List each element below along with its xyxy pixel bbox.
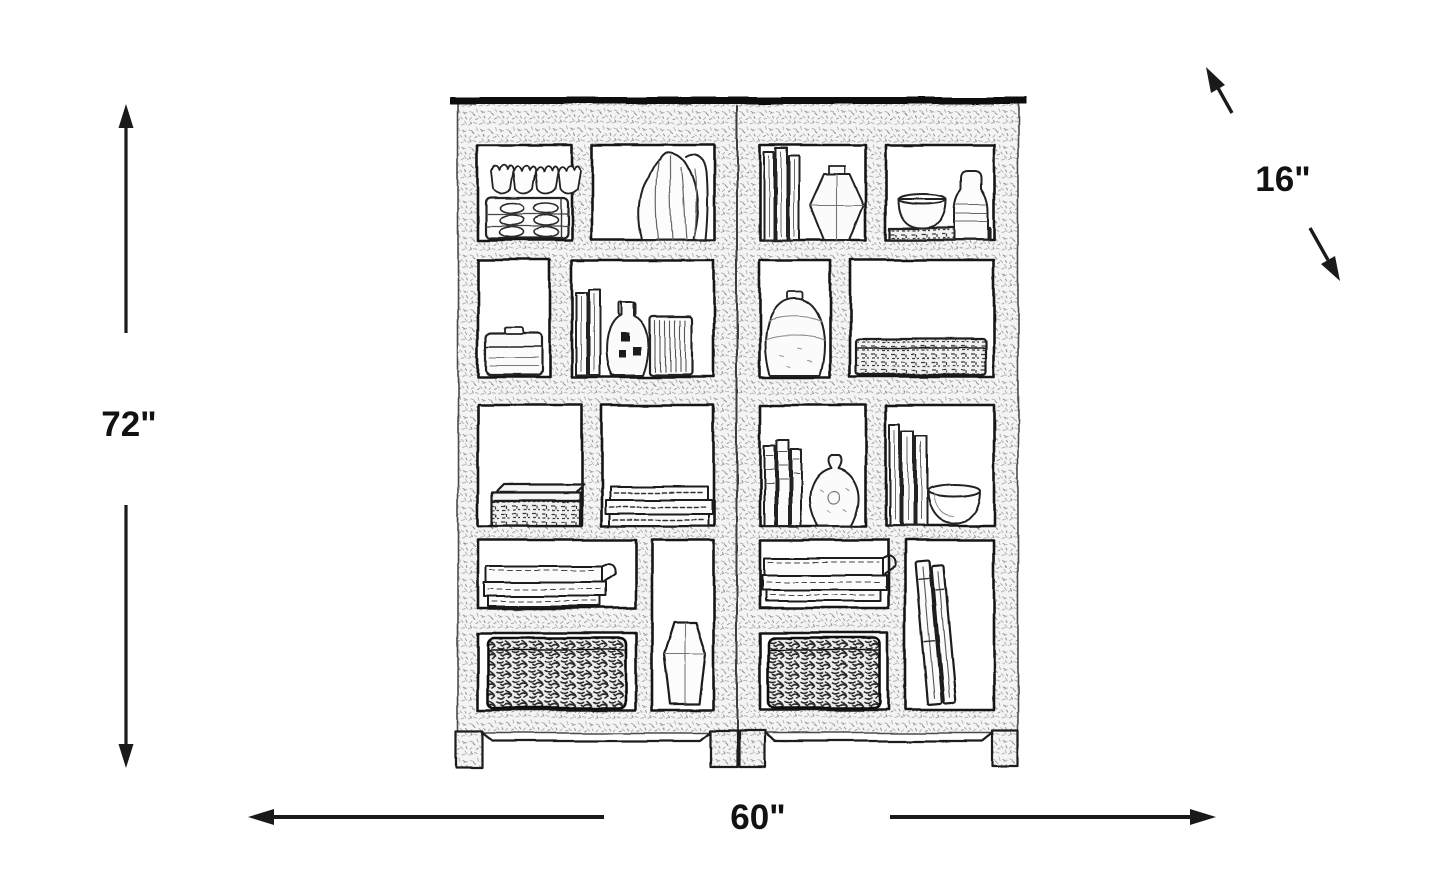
height-dimension-label: 72": [101, 405, 157, 444]
woven-basket-drawing: [768, 638, 880, 708]
scalloped-tray-goblets-drawing: [486, 166, 580, 238]
depth-dimension-label: 16": [1255, 160, 1311, 199]
bookcase-sketch: [450, 97, 1026, 766]
dimension-diagram: 72" 60" 16": [0, 0, 1440, 880]
stacked-books-drawing: [606, 487, 712, 526]
woven-basket-drawing: [488, 638, 626, 708]
diagram-svg: 72" 60" 16": [0, 0, 1440, 880]
bookcase-top-edge: [450, 97, 1026, 104]
woven-low-box-drawing: [492, 485, 584, 526]
bookcase-legs: [456, 731, 1018, 766]
flat-books-drawing: [484, 564, 615, 606]
flat-books-drawing: [762, 556, 895, 601]
lidded-box-drawing: [486, 327, 542, 375]
faceted-vase-drawing: [664, 622, 706, 704]
woven-tray-drawing: [856, 339, 986, 375]
width-dimension-label: 60": [730, 798, 786, 837]
